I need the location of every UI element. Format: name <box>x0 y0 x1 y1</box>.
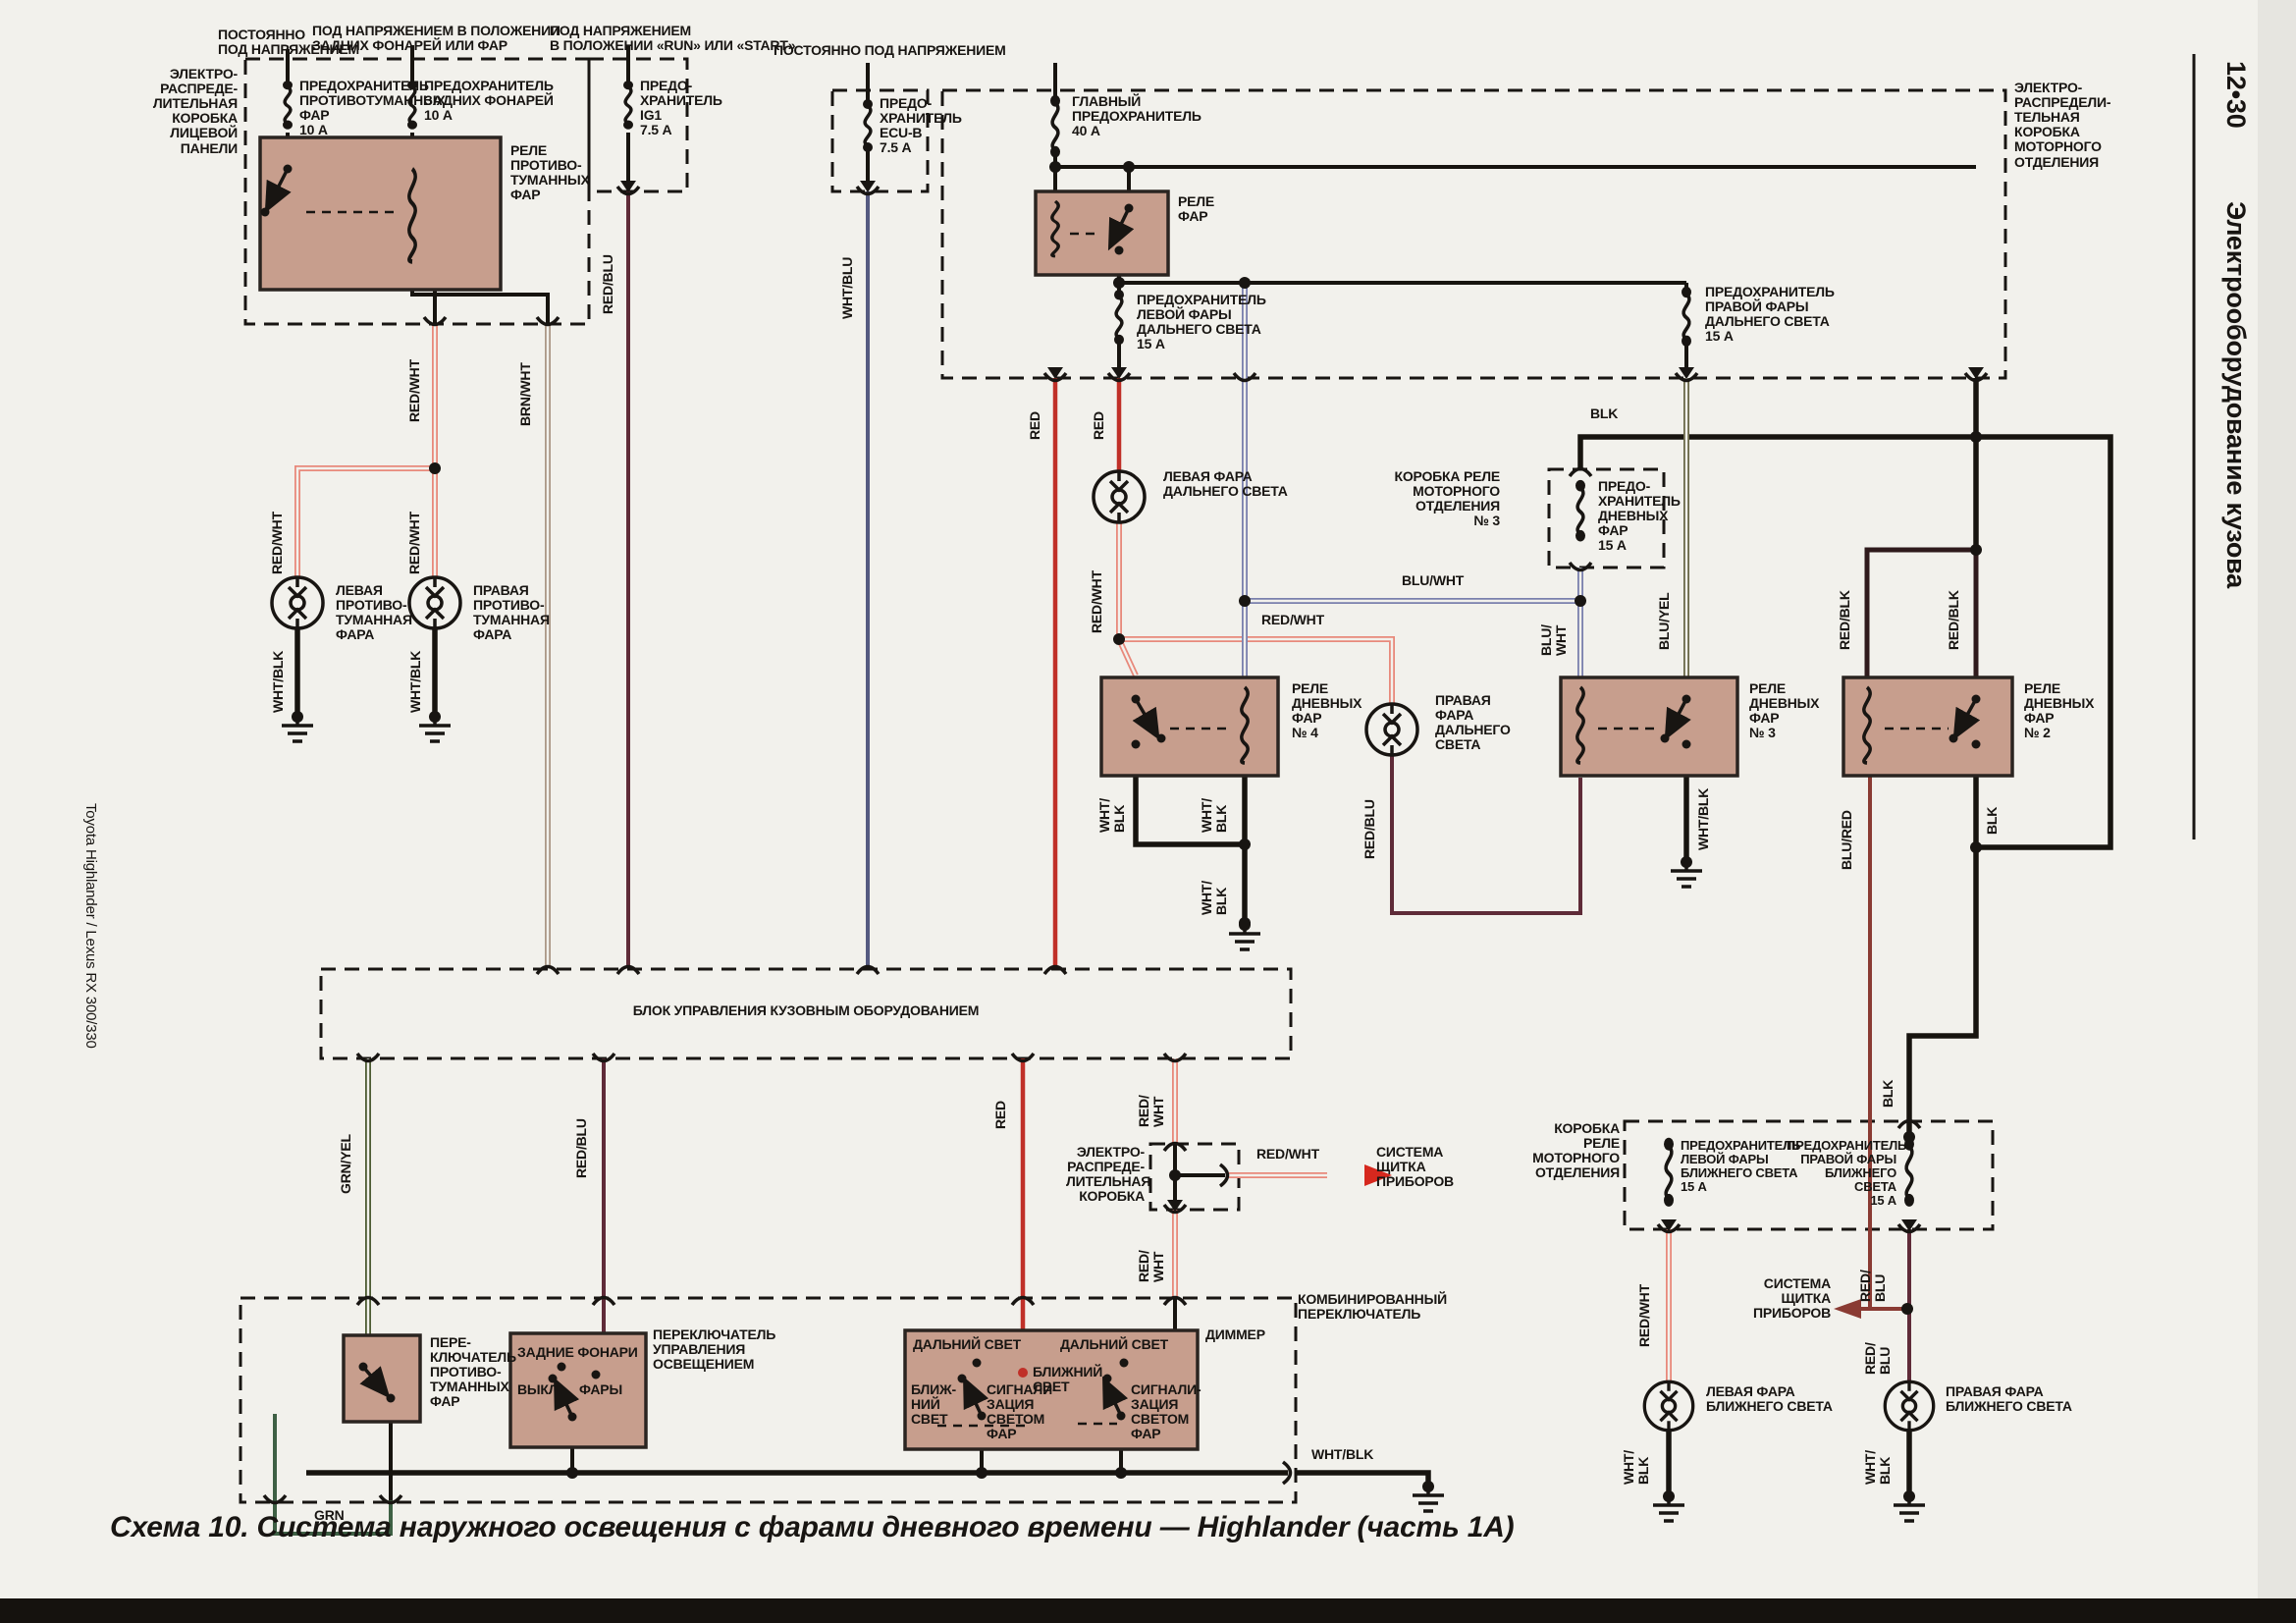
fuse-lh-low <box>1664 1138 1674 1207</box>
box-drl-fuse <box>1549 469 1664 568</box>
fog-switch-box <box>344 1335 420 1422</box>
wires-red-blk <box>1867 550 1976 677</box>
fuse-lh-high <box>1114 290 1124 345</box>
system-arrows <box>1327 1164 1861 1319</box>
box-bottom-relay-box <box>1625 1121 1993 1229</box>
wires-heavy-black <box>297 378 2110 1494</box>
fuse-tail <box>407 81 417 130</box>
fuse-fog <box>283 81 293 130</box>
lamp-lh-high <box>1094 471 1145 522</box>
fuse-main <box>1050 95 1060 158</box>
relay-fog-box <box>260 137 501 290</box>
lamp-r-fog <box>409 577 460 628</box>
lamp-rh-high <box>1366 704 1417 755</box>
box-ecub <box>832 90 928 191</box>
wires-red-blu <box>598 191 1909 1382</box>
fuse-ig1 <box>623 81 633 130</box>
arrow-to-cluster-1 <box>1327 1164 1392 1186</box>
bottom-scan-bar <box>0 1598 2296 1623</box>
relay-drl3-box <box>1561 677 1737 776</box>
box-ig1 <box>589 59 687 191</box>
fuse-drl <box>1575 480 1585 542</box>
wires-double <box>297 283 1686 1382</box>
lamp-lh-low <box>1644 1381 1692 1430</box>
box-body-ecu <box>321 969 1291 1058</box>
lamp-rh-low <box>1885 1381 1933 1430</box>
fuse-rh-low <box>1904 1138 1914 1207</box>
lamp-l-fog <box>272 577 323 628</box>
fuse-rh-high <box>1682 287 1691 347</box>
junction-dots <box>429 161 1982 1479</box>
fuse-ecub <box>863 99 873 152</box>
relay-drl4-box <box>1101 677 1278 776</box>
dimmer-switch-box <box>905 1330 1198 1449</box>
wiring-diagram-page: ПОСТОЯННО ПОД НАПРЯЖЕНИЕМПОД НАПРЯЖЕНИЕМ… <box>0 0 2296 1623</box>
wires-red <box>1023 378 1119 1371</box>
light-control-switch-box <box>510 1333 646 1447</box>
diagram-canvas <box>0 0 2296 1623</box>
arrow-to-cluster-2 <box>1834 1299 1861 1319</box>
